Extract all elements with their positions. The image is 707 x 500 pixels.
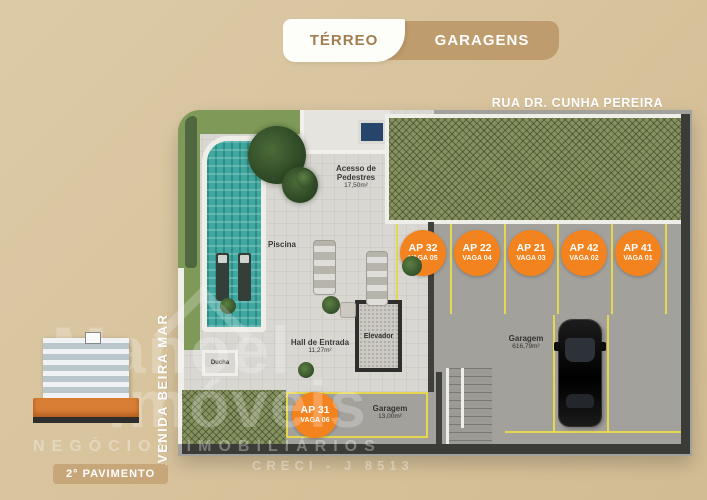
stall-line (665, 224, 667, 314)
room-label-acesso: Acesso de Pedestres 17,50m² (316, 164, 396, 190)
room-name: Elevador (364, 333, 394, 340)
room-label-piscina: Piscina (252, 240, 312, 249)
room-name: Garagem (496, 334, 556, 343)
parking-badge-ap41: AP 41 VAGA 01 (615, 230, 661, 276)
badge-vaga: VAGA 02 (569, 255, 598, 263)
badge-ap: AP 22 (463, 243, 492, 255)
badge-vaga: VAGA 01 (623, 255, 652, 263)
stall-line (505, 431, 681, 433)
sofa (313, 240, 336, 295)
parking-badge-ap22: AP 22 VAGA 04 (454, 230, 500, 276)
building-thumbnail[interactable] (33, 336, 139, 428)
sofa (366, 251, 388, 306)
room-area: 11,27m² (283, 347, 357, 354)
car-mirror (600, 342, 606, 351)
stall-line (504, 224, 506, 314)
room-label-garagem-principal: Garagem 616,79m² (496, 334, 556, 350)
street-label-top: RUA DR. CUNHA PEREIRA (460, 96, 695, 110)
building-tower (43, 338, 129, 404)
floorplan-page: TÉRREO GARAGENS RUA DR. CUNHA PEREIRA AV… (0, 0, 707, 500)
car-windshield (565, 338, 595, 362)
spa-tub (358, 120, 386, 144)
stall-line (553, 315, 555, 431)
stall-line (611, 224, 613, 314)
badge-vaga: VAGA 04 (462, 255, 491, 263)
plant (298, 362, 314, 378)
room-area: 17,50m² (316, 182, 396, 189)
hedge-strip-left (185, 116, 197, 268)
plant (296, 170, 314, 188)
tab-garagens[interactable]: GARAGENS (405, 21, 559, 60)
parking-badge-ap42: AP 42 VAGA 02 (561, 230, 607, 276)
room-label-hall: Hall de Entrada 11,27m² (283, 338, 357, 354)
badge-vaga: VAGA 03 (516, 255, 545, 263)
tab-terreo[interactable]: TÉRREO (283, 19, 405, 62)
badge-ap: AP 21 (517, 243, 546, 255)
hedge-bottom-left (182, 390, 286, 444)
badge-ap: AP 41 (624, 243, 653, 255)
armchair (340, 302, 356, 318)
car-rear-window (566, 394, 594, 408)
room-name: Hall de Entrada (283, 338, 357, 347)
pool-lounger (238, 253, 251, 301)
watermark-creci: CRECI - J 8513 (252, 458, 414, 473)
floor-plan: AP 32 VAGA 05 AP 22 VAGA 04 AP 21 VAGA 0… (178, 110, 692, 456)
parking-badge-ap21: AP 21 VAGA 03 (508, 230, 554, 276)
stall-line (557, 224, 559, 314)
room-area: 13,00m² (360, 413, 420, 420)
elevator: Elevador (355, 300, 402, 372)
wall-interior-lower (436, 372, 442, 444)
car-top-view (559, 320, 601, 426)
hedge-top (385, 114, 685, 224)
stairs-ramp (446, 368, 492, 444)
room-name: Garagem (360, 404, 420, 413)
room-name: Acesso de Pedestres (316, 164, 396, 182)
plant (322, 296, 340, 314)
room-area: 616,79m² (496, 343, 556, 350)
building-podium (33, 398, 139, 418)
plant (402, 256, 422, 276)
room-name: Piscina (252, 240, 312, 249)
entrance-roof (300, 110, 390, 154)
wall-bottom (182, 444, 690, 454)
room-label-garagem-pequena: Garagem 13,00m² (360, 404, 420, 420)
badge-ap: AP 42 (570, 243, 599, 255)
stall-line (450, 224, 452, 314)
building-base (33, 417, 139, 423)
wall-right (681, 114, 690, 452)
building-roof-sign (85, 332, 101, 344)
stall-line (607, 315, 609, 431)
floor-badge-2-pavimento[interactable]: 2° PAVIMENTO (53, 464, 168, 484)
badge-ap: AP 32 (409, 243, 438, 255)
lounger-pad (218, 255, 227, 263)
badge-ap: AP 31 (301, 405, 330, 417)
badge-vaga: VAGA 06 (300, 417, 329, 425)
stair-rail (461, 368, 464, 428)
parking-badge-ap31: AP 31 VAGA 06 (292, 392, 338, 438)
pool-lounger (216, 253, 229, 301)
lounger-pad (240, 255, 249, 263)
